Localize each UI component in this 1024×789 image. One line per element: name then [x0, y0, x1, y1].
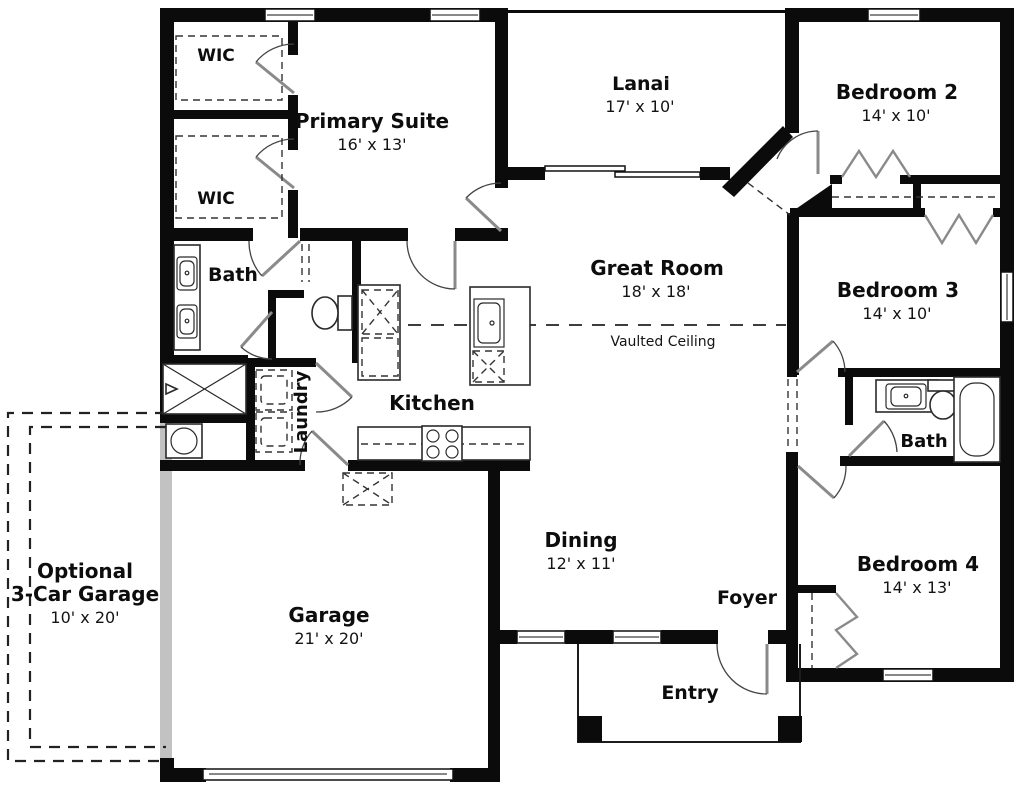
wall-shower-south [160, 414, 248, 423]
wall-suite-south-2 [300, 228, 408, 241]
dims-bedroom3: 14' x 10' [862, 304, 931, 323]
wall-dining-south-3 [661, 630, 718, 644]
label-great-room: Great Room [590, 256, 724, 280]
wall-garage-shared-gray [160, 422, 172, 762]
floor-plan-page: WIC WIC Primary Suite 16' x 13' Lanai 17… [0, 0, 1024, 789]
wall-laundry-west [246, 358, 255, 462]
bifold-closet-bedroom3 [925, 215, 993, 243]
floor-plan: WIC WIC Primary Suite 16' x 13' Lanai 17… [0, 0, 1024, 789]
label-bath1: Bath [208, 264, 258, 286]
label-primary-suite: Primary Suite [295, 109, 449, 133]
wall-dining-south-1 [500, 630, 517, 644]
wall-bath2-north [838, 368, 1014, 377]
label-optional-garage-2: 3-Car Garage [11, 582, 159, 606]
window-icon [265, 9, 315, 21]
door-bedroom4 [798, 466, 846, 498]
wall-garage-north-1 [160, 460, 305, 471]
cased-opening-bath1 [302, 244, 309, 282]
bath1-vanity [174, 245, 200, 350]
porch-column [578, 716, 602, 742]
sliding-door-icon [545, 166, 700, 177]
label-optional-garage-1: Optional [37, 559, 133, 583]
dims-dining: 12' x 11' [546, 554, 615, 573]
bathtub-icon [954, 377, 1000, 462]
water-heater-icon [343, 473, 392, 505]
door-laundry [316, 363, 352, 412]
wall-bath2-hall-divider [845, 377, 853, 425]
wall-wc-vertical [268, 290, 276, 358]
wall-bath2-north-corner [787, 368, 797, 377]
wall-suite-south-1 [160, 228, 253, 241]
wall-primary-east [495, 8, 508, 188]
dims-primary-suite: 16' x 13' [337, 135, 406, 154]
door-bedroom3 [797, 341, 845, 372]
dims-optional-garage: 10' x 20' [50, 608, 119, 627]
wall-greatroom-bedroom3 [787, 213, 799, 375]
label-bedroom4: Bedroom 4 [857, 552, 979, 576]
wall-lanai-bottom-west [505, 167, 545, 180]
garage-door-icon [203, 769, 453, 780]
dims-bedroom2: 14' x 10' [861, 106, 930, 125]
wall-shower-north [160, 355, 248, 364]
wall-laundry-north [246, 358, 316, 367]
dims-lanai: 17' x 10' [605, 97, 674, 116]
wall-lanai-bottom-east [700, 167, 730, 180]
kitchen-range-counter [358, 426, 530, 461]
wall-dining-south-2 [565, 630, 613, 644]
dims-bedroom4: 14' x 13' [882, 578, 951, 597]
kitchen-island [470, 287, 530, 385]
label-garage: Garage [288, 603, 369, 627]
wall-bedroom4-closet-north [798, 585, 836, 593]
door-hallway [407, 241, 455, 289]
label-dining: Dining [544, 528, 617, 552]
bifold-closet-bedroom2 [842, 151, 910, 177]
wall-bedroom4-west [786, 452, 798, 682]
door-front-entry [717, 644, 767, 694]
cased-opening-hall [788, 379, 797, 450]
window-icon [883, 669, 933, 681]
label-entry: Entry [661, 682, 719, 704]
door-water-closet [241, 312, 272, 359]
wall-garage-bottom-west [160, 768, 206, 782]
washer-dryer-icons [256, 370, 292, 452]
wall-closet3-south-2 [993, 208, 1014, 217]
wall-lanai-top-thin [505, 10, 787, 13]
wall-wic-east-3 [288, 190, 298, 238]
window-icon [517, 631, 565, 643]
door-primary-suite [466, 183, 501, 231]
label-bedroom2: Bedroom 2 [836, 80, 958, 104]
label-wic2: WIC [197, 189, 235, 209]
note-vaulted-ceiling: Vaulted Ceiling [610, 334, 715, 350]
window-icon [613, 631, 661, 643]
window-icon [868, 9, 920, 21]
bifold-closet-bedroom4 [836, 593, 857, 668]
door-bath2 [849, 421, 897, 456]
stove-icon [422, 426, 462, 461]
label-bedroom3: Bedroom 3 [837, 278, 959, 302]
wall-closet-divider [913, 175, 921, 217]
wall-wc-stub [268, 290, 304, 298]
wall-garage-east [488, 466, 500, 782]
wall-closet2-north-1 [830, 175, 842, 184]
window-icon [1001, 272, 1013, 322]
label-foyer: Foyer [717, 587, 778, 609]
wall-bedroom2-west [785, 8, 799, 133]
wall-diagonal-lanai-corner [722, 126, 793, 197]
window-icon [430, 9, 480, 21]
porch-column [778, 716, 802, 742]
toilet-icon [312, 296, 352, 330]
shower-icon [163, 364, 246, 414]
dims-garage: 21' x 20' [294, 629, 363, 648]
wall-wic-divider [160, 110, 298, 119]
kitchen-fridge-counter [358, 285, 400, 380]
label-bath2: Bath [900, 431, 947, 452]
dashed-diagonal-opening [748, 183, 790, 215]
label-wic1: WIC [197, 46, 235, 66]
wall-right [1000, 8, 1014, 682]
label-laundry: Laundry [291, 370, 312, 453]
utility-sink-icon [166, 424, 202, 458]
dims-great-room: 18' x 18' [621, 282, 690, 301]
label-lanai: Lanai [612, 73, 670, 95]
label-kitchen: Kitchen [389, 391, 475, 415]
